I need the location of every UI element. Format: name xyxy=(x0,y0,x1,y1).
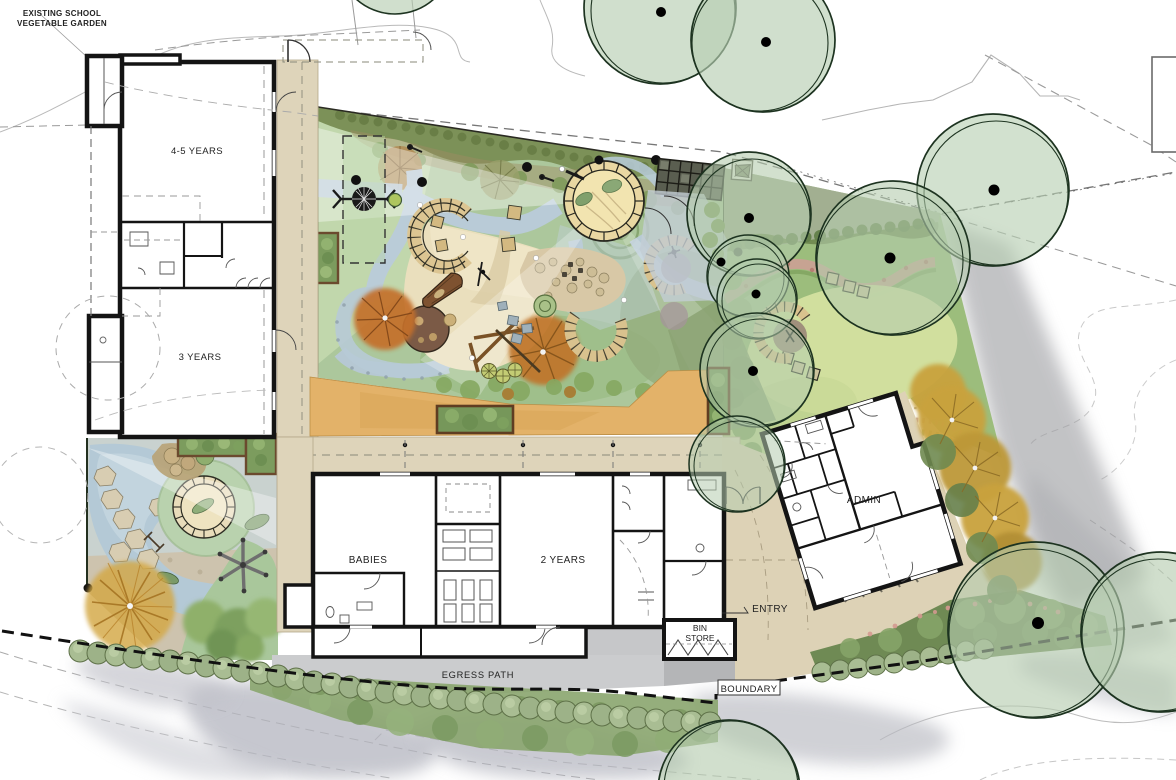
svg-text:STORE: STORE xyxy=(685,633,714,643)
svg-text:2 YEARS: 2 YEARS xyxy=(541,555,586,566)
svg-text:BABIES: BABIES xyxy=(349,555,388,566)
svg-text:4-5 YEARS: 4-5 YEARS xyxy=(171,146,223,157)
svg-text:BIN: BIN xyxy=(693,623,707,633)
svg-text:EXISTING SCHOOL: EXISTING SCHOOL xyxy=(23,9,101,18)
svg-text:ENTRY: ENTRY xyxy=(752,604,788,615)
svg-text:EGRESS PATH: EGRESS PATH xyxy=(442,670,514,680)
svg-text:BOUNDARY: BOUNDARY xyxy=(721,684,778,695)
svg-text:VEGETABLE GARDEN: VEGETABLE GARDEN xyxy=(17,19,107,28)
svg-text:3 YEARS: 3 YEARS xyxy=(179,352,222,363)
svg-text:ADMIN: ADMIN xyxy=(847,495,881,506)
